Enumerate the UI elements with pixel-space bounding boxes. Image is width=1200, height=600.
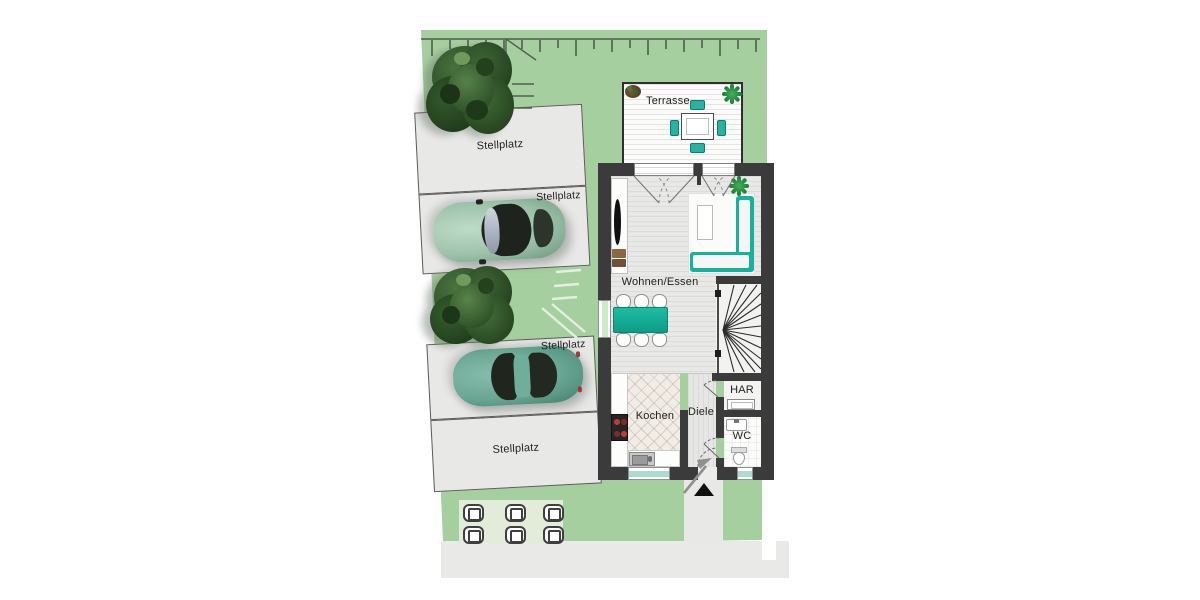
- entrance-arrow: [694, 483, 714, 496]
- room-label-living: Wohnen/Essen: [612, 276, 708, 288]
- terrace-door-swings: [634, 176, 735, 203]
- room-label-utility: HAR: [722, 384, 762, 396]
- room-label-kitchen: Kochen: [629, 410, 681, 422]
- room-label-wc: WC: [722, 430, 762, 442]
- stairs-treads: [723, 285, 761, 372]
- room-label-hall: Diele: [683, 406, 719, 418]
- floor-plan-canvas: Stellplatz Stellplatz Stellplatz S: [0, 0, 1200, 600]
- plan-linework: [0, 0, 1200, 600]
- interior-door-swings: [698, 381, 719, 467]
